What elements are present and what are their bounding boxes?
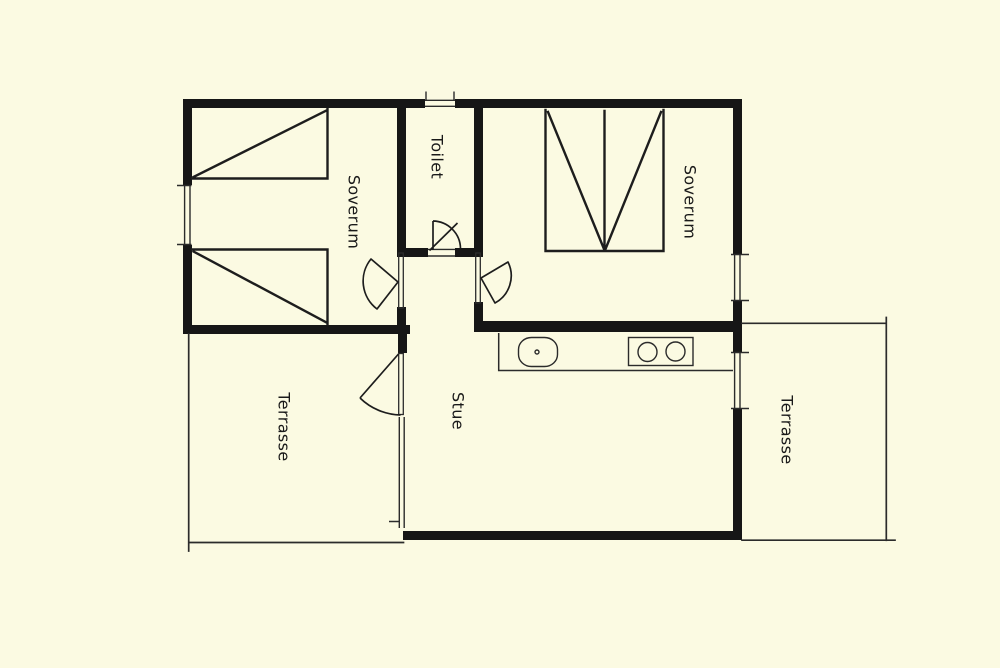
wall-east-middle	[733, 301, 742, 352]
wall-toilet-west-stub	[397, 307, 406, 325]
stove-burner-right-icon	[666, 342, 685, 361]
door-leaf-soverum-left	[399, 253, 404, 308]
stove-burner-left-icon	[638, 343, 657, 362]
floor-plan-canvas: Soverum Toilet Soverum Stue Terrasse Ter…	[0, 0, 1000, 668]
wall-east-lower	[733, 409, 742, 540]
toilet-door-opening	[428, 249, 455, 256]
room-label-stue: Stue	[449, 392, 468, 430]
wall-bedroom-south	[183, 325, 410, 334]
kitchen-counter-icon	[499, 333, 733, 371]
kitchen	[499, 333, 733, 371]
door-leaf-soverum-right	[476, 253, 481, 303]
wall-stue-north	[474, 321, 742, 332]
terrasse-right-outline	[742, 318, 895, 541]
door-swings	[360, 221, 511, 415]
terrasse-left-outline	[189, 334, 404, 551]
wall-toilet-west-upper	[397, 108, 406, 253]
wall-west-lower	[183, 245, 192, 334]
door-leaves	[399, 253, 481, 415]
wall-top-right-segment	[455, 99, 742, 108]
sink-drain-icon	[535, 350, 539, 354]
window-west-icon	[177, 185, 192, 245]
wall-west-upper	[183, 99, 192, 185]
bed-single-bottom-icon	[192, 250, 328, 325]
room-label-soverum-left: Soverum	[345, 175, 364, 249]
room-label-soverum-right: Soverum	[681, 165, 700, 239]
wall-east-upper	[733, 99, 742, 254]
door-leaf-terrasse	[399, 354, 404, 415]
door-swing-toilet-icon	[430, 221, 461, 251]
floor-plan-drawing	[0, 0, 1000, 668]
walls	[183, 99, 742, 540]
door-swing-terrasse-icon	[360, 354, 401, 415]
window-wall-stue-west-icon	[389, 417, 404, 528]
door-swing-soverum-left-icon	[363, 259, 398, 309]
wall-toilet-east-stub	[474, 302, 483, 322]
door-swing-soverum-right-icon	[481, 262, 511, 303]
room-label-terrasse-left: Terrasse	[275, 392, 294, 461]
wall-stue-south	[403, 531, 742, 540]
bed-double-icon	[546, 110, 664, 251]
window-north-icon	[425, 92, 455, 107]
window-east-bedroom-icon	[731, 254, 749, 301]
room-label-terrasse-right: Terrasse	[778, 395, 797, 464]
bed-single-top-icon	[192, 109, 328, 179]
sink-icon	[519, 338, 558, 367]
window-east-stue-icon	[731, 352, 749, 409]
wall-toilet-east-upper	[474, 108, 483, 253]
wall-stue-west-upper	[398, 333, 407, 353]
room-label-toilet: Toilet	[428, 135, 447, 179]
wall-top-left-segment	[183, 99, 425, 108]
